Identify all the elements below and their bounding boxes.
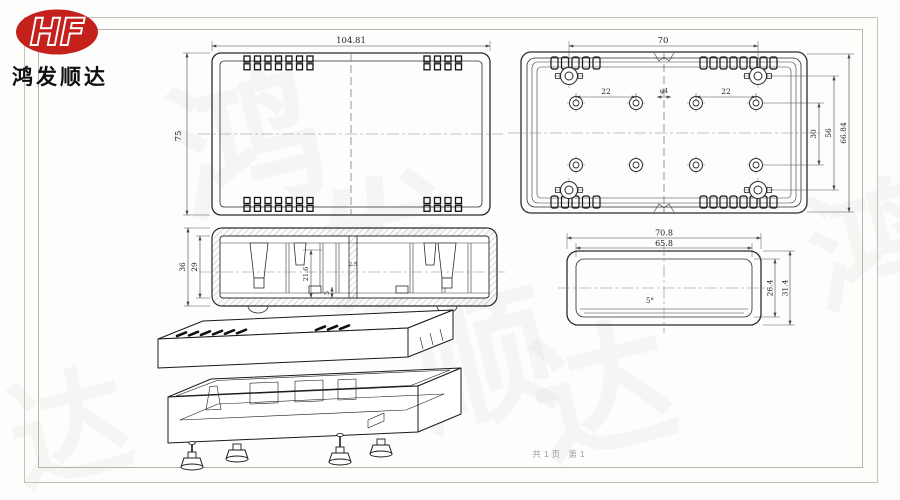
dim-foot: 5: [324, 291, 331, 295]
foot-bump: [248, 306, 268, 313]
dim-row-pitch: 30: [809, 129, 818, 139]
dim-end-outer-height: 31.4: [781, 279, 790, 296]
dim-outer-height: 36: [178, 262, 187, 272]
view-isometric-exploded: [158, 310, 461, 470]
dim-rib: 2.5: [349, 262, 358, 268]
dim-pitch-left: 22: [601, 87, 611, 96]
watermark-char: 鸿: [793, 160, 900, 333]
dim-inner-height: 29: [190, 262, 199, 272]
dim-mid-span: 56: [824, 128, 833, 138]
dim-center-hole: φ4: [660, 88, 668, 95]
dim-end-inner-width: 65.8: [655, 239, 673, 248]
view-end: 5° 70.8 65.8 26.4 31.4: [558, 229, 795, 334]
dim-cover-height: 75: [174, 131, 184, 142]
dim-total: 66.84: [839, 122, 848, 144]
dim-cover-width: 104.81: [336, 36, 366, 46]
dim-boss-span: 70: [658, 36, 669, 46]
page-info: 共1页 第1: [532, 449, 587, 459]
drawing-sheet: 鸿 发 顺 达 达 鸿 HF 鸿发顺达 104.81 75: [0, 0, 900, 500]
draft-angle-label: 5°: [646, 297, 654, 305]
watermark-char: 达: [0, 351, 145, 500]
dim-end-outer-width: 70.8: [655, 229, 673, 238]
iso-base: [168, 368, 461, 443]
view-section: 36 29 21.6 5 2.5: [178, 228, 505, 313]
dim-cavity: 21.6: [302, 267, 310, 281]
dim-pitch-right: 22: [721, 87, 731, 96]
iso-cover: [158, 310, 453, 368]
logo-initials: HF: [30, 11, 85, 54]
view-base-interior: 70 22 22 φ4 30 56 66.84: [508, 36, 854, 213]
cad-drawing-canvas: 鸿 发 顺 达 达 鸿 HF 鸿发顺达 104.81 75: [0, 0, 900, 500]
company-logo: HF 鸿发顺达: [12, 10, 108, 90]
pcb-screw-bosses: [567, 94, 765, 174]
company-name: 鸿发顺达: [12, 65, 108, 89]
dim-end-inner-height: 26.4: [766, 279, 775, 296]
